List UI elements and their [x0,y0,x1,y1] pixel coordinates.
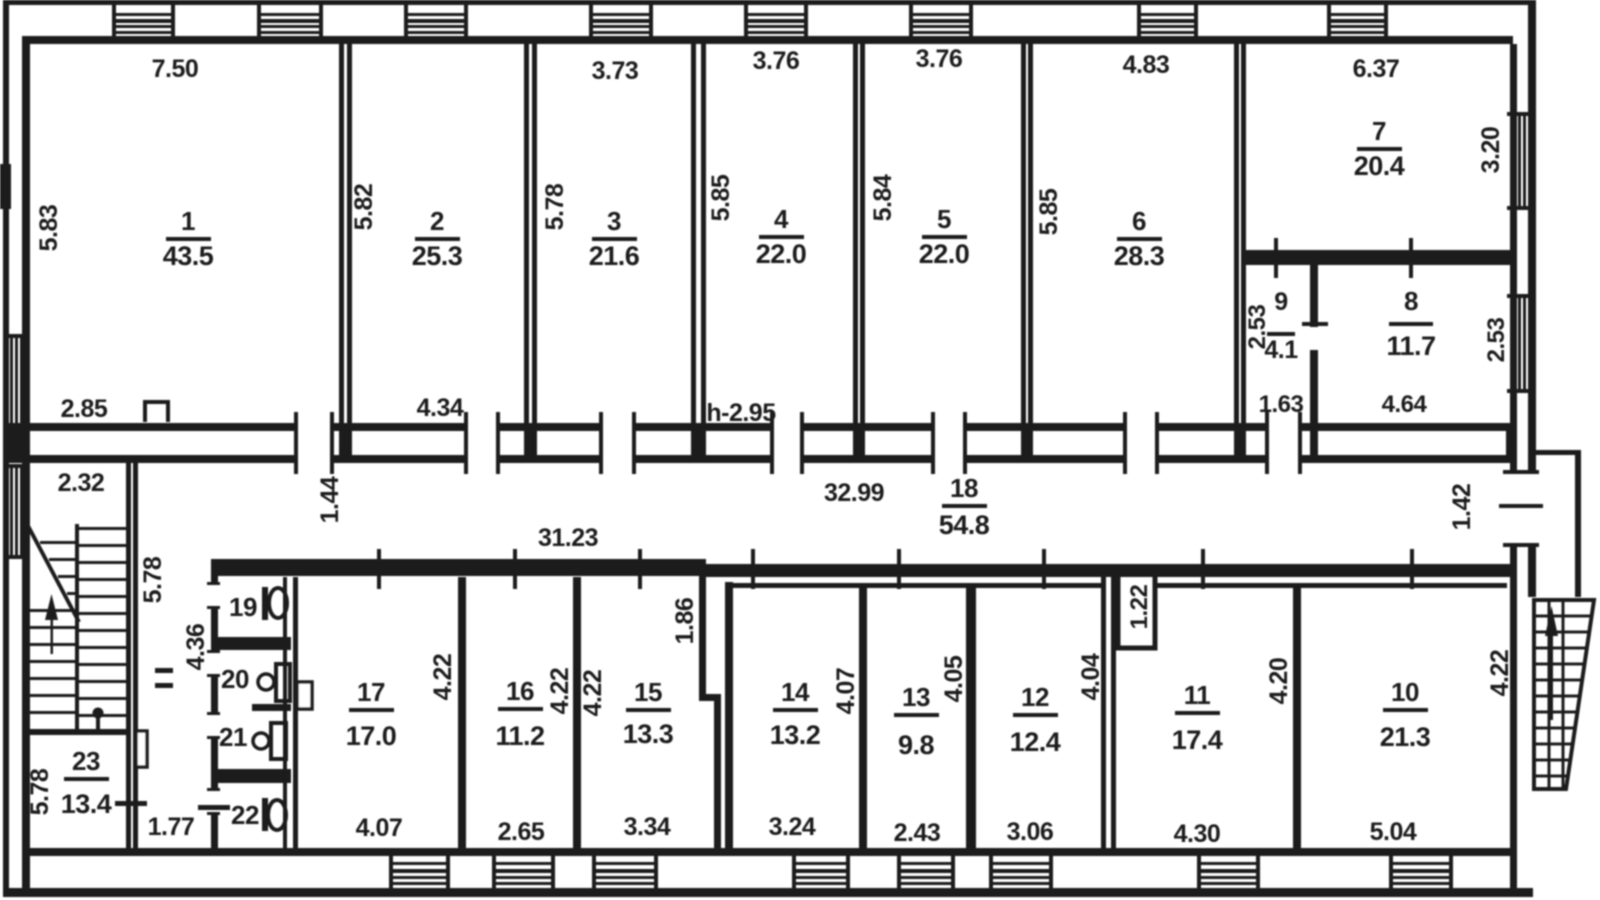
svg-text:5.85: 5.85 [1035,188,1063,235]
svg-text:17.0: 17.0 [346,721,397,751]
svg-text:22: 22 [231,800,259,830]
svg-text:13.2: 13.2 [770,720,821,750]
svg-text:1.86: 1.86 [671,598,699,645]
svg-text:4.05: 4.05 [940,655,968,702]
svg-text:9: 9 [1274,288,1287,316]
svg-text:18: 18 [950,473,978,503]
svg-text:1.22: 1.22 [1126,584,1153,629]
svg-text:20: 20 [221,664,249,694]
svg-text:4.04: 4.04 [1077,653,1105,700]
svg-text:5.84: 5.84 [869,174,897,221]
svg-text:4.07: 4.07 [356,814,403,842]
svg-text:h-2.95: h-2.95 [706,399,776,427]
svg-text:31.23: 31.23 [538,524,598,552]
svg-text:3.24: 3.24 [769,813,816,841]
svg-text:21: 21 [219,722,247,752]
svg-text:3: 3 [607,206,621,236]
svg-text:4: 4 [774,204,789,234]
svg-text:2.65: 2.65 [498,818,545,846]
svg-text:4.64: 4.64 [1382,391,1428,418]
svg-text:5.78: 5.78 [139,556,167,603]
svg-text:2.53: 2.53 [1244,304,1271,349]
svg-text:6.37: 6.37 [1353,55,1400,83]
svg-text:4.83: 4.83 [1123,51,1170,79]
svg-text:6: 6 [1132,206,1146,236]
svg-text:17: 17 [357,677,385,707]
svg-text:4.22: 4.22 [579,670,607,717]
svg-text:4.20: 4.20 [1265,658,1293,705]
svg-text:19: 19 [229,592,257,622]
svg-text:2.43: 2.43 [894,819,941,847]
svg-text:1.42: 1.42 [1448,484,1476,531]
svg-text:54.8: 54.8 [939,510,990,540]
svg-text:13.4: 13.4 [61,789,112,819]
svg-text:17.4: 17.4 [1172,725,1223,755]
svg-text:22.0: 22.0 [756,239,807,269]
svg-text:7: 7 [1372,116,1386,146]
svg-text:5: 5 [937,204,951,234]
svg-text:11.7: 11.7 [1386,331,1435,361]
svg-text:3.20: 3.20 [1477,127,1505,174]
svg-text:4.22: 4.22 [546,668,574,715]
svg-text:4.22: 4.22 [1486,650,1514,697]
svg-text:5.82: 5.82 [350,184,378,231]
svg-text:32.99: 32.99 [824,479,884,507]
svg-text:4.22: 4.22 [429,654,457,701]
svg-text:3.76: 3.76 [916,45,963,73]
svg-text:28.3: 28.3 [1114,241,1165,271]
svg-text:4.36: 4.36 [182,624,210,671]
svg-text:25.3: 25.3 [412,241,463,271]
svg-text:13: 13 [902,682,930,712]
svg-text:3.73: 3.73 [592,57,639,85]
svg-text:13.3: 13.3 [623,719,674,749]
svg-text:3.06: 3.06 [1007,818,1054,846]
svg-text:43.5: 43.5 [163,241,214,271]
svg-text:12.4: 12.4 [1010,727,1061,757]
svg-text:2: 2 [430,206,444,236]
svg-text:3.34: 3.34 [624,813,671,841]
svg-text:8: 8 [1404,286,1418,316]
svg-text:4.07: 4.07 [832,668,860,715]
svg-text:16: 16 [506,676,534,706]
svg-text:22.0: 22.0 [919,239,970,269]
svg-text:11.2: 11.2 [495,721,544,751]
svg-text:5.04: 5.04 [1370,818,1417,846]
svg-text:2.85: 2.85 [61,395,108,423]
svg-text:1.63: 1.63 [1259,391,1304,418]
svg-text:5.78: 5.78 [541,183,569,230]
svg-text:23: 23 [72,746,100,776]
svg-text:20.4: 20.4 [1354,151,1405,181]
svg-text:12: 12 [1021,682,1049,712]
svg-text:21.6: 21.6 [589,241,640,271]
svg-text:11: 11 [1184,680,1211,710]
svg-text:2.53: 2.53 [1483,317,1510,362]
svg-text:3.76: 3.76 [753,47,800,75]
svg-text:1: 1 [181,206,195,236]
svg-text:5.85: 5.85 [707,174,735,221]
svg-text:14: 14 [781,677,810,707]
svg-text:7.50: 7.50 [152,55,199,83]
svg-text:1.44: 1.44 [316,476,344,523]
svg-text:2.32: 2.32 [58,469,105,497]
svg-text:4.30: 4.30 [1174,820,1221,848]
svg-text:10: 10 [1391,677,1419,707]
svg-text:1.77: 1.77 [148,813,195,841]
svg-text:15: 15 [634,677,662,707]
svg-text:9.8: 9.8 [898,730,935,760]
svg-text:4.34: 4.34 [417,394,464,422]
svg-text:5.78: 5.78 [26,768,54,815]
svg-text:5.83: 5.83 [35,205,63,252]
svg-text:21.3: 21.3 [1380,722,1431,752]
